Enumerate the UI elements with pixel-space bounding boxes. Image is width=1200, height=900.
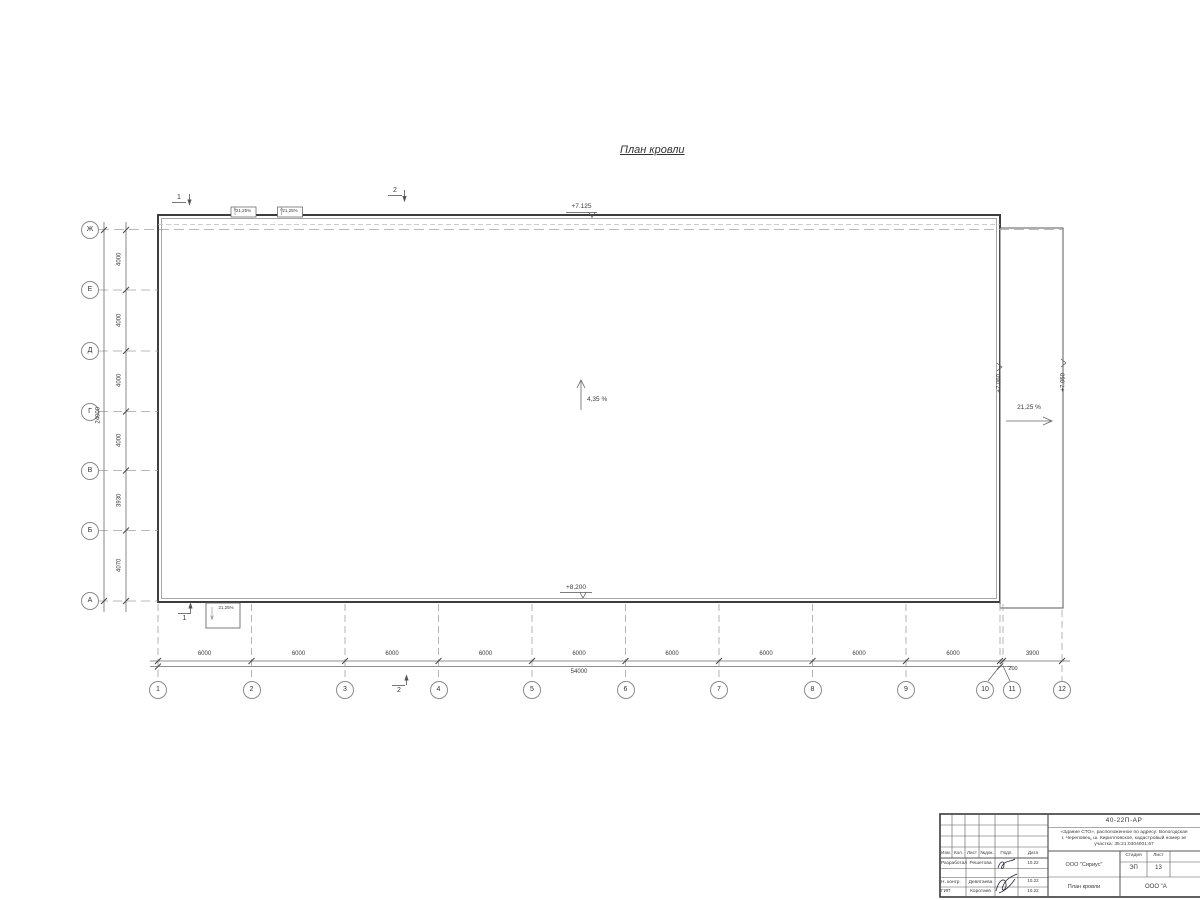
col-axis-bubble: 12	[1053, 681, 1071, 699]
row-axis-bubble: Ж	[81, 221, 99, 239]
dim-label: 4000	[117, 365, 124, 395]
level-top-label: +7.125	[561, 203, 602, 210]
canopy-slope-label: 21,25%	[212, 606, 240, 611]
col-axis-bubble: 1	[149, 681, 167, 699]
titleblock-name: Девятаева	[967, 880, 994, 885]
dim-label: 4070	[117, 550, 124, 580]
dim-label: 6000	[279, 651, 319, 658]
titleblock-stage-label: Стадия	[1120, 853, 1147, 858]
section-number: 2	[393, 687, 405, 695]
section-number: 2	[389, 187, 401, 195]
col-axis-bubble: 5	[523, 681, 541, 699]
dim-label: 6000	[652, 651, 692, 658]
titleblock-role: Н. контр.	[941, 880, 961, 885]
titleblock-name: Коротаев	[967, 889, 994, 894]
titleblock-doc-number: 40-22П-АР	[1048, 817, 1200, 824]
row-axis-bubble: Д	[81, 342, 99, 360]
level-bottom-label: +8.200	[555, 584, 597, 591]
row-axis-bubble: А	[81, 592, 99, 610]
titleblock-col-header: №док.	[979, 850, 995, 855]
titleblock-org2: ООО "А	[1145, 884, 1167, 891]
slope-right-label: 21,25 %	[1004, 404, 1054, 411]
dim-label: 4000	[117, 425, 124, 455]
titleblock-name: Решетова	[967, 861, 994, 866]
titleblock-desc-line: «Здание СТО», расположенное по адресу: В…	[1048, 830, 1200, 835]
titleblock-stage-value: ЭП	[1120, 865, 1147, 872]
dim-label: 3930	[117, 485, 124, 515]
row-axis-bubble: Е	[81, 281, 99, 299]
canopy-slope-label: 21,25%	[231, 209, 256, 214]
col-axis-bubble: 11	[1003, 681, 1021, 699]
dim-label: 4000	[117, 305, 124, 335]
dim-label: 6000	[839, 651, 879, 658]
dim-label: 6000	[559, 651, 599, 658]
dim-total-label: 24000	[96, 397, 103, 433]
col-axis-bubble: 4	[430, 681, 448, 699]
col-axis-bubble: 7	[710, 681, 728, 699]
col-axis-bubble: 3	[336, 681, 354, 699]
canopy-slope-label: 21,25%	[278, 209, 303, 214]
row-axis-bubble: Б	[81, 522, 99, 540]
titleblock-date: 10.22	[1018, 861, 1048, 866]
titleblock-date: 10.22	[1018, 889, 1048, 894]
titleblock-sheet-label: Лист	[1147, 853, 1170, 858]
titleblock-sheet-title: План кровли	[1048, 884, 1120, 890]
dim-label: 200	[1004, 666, 1022, 672]
col-axis-bubble: 10	[976, 681, 994, 699]
dim-label: 6000	[372, 651, 412, 658]
drawing-sheet: { "title": "План кровли", "levels": { "t…	[0, 0, 1200, 900]
titleblock-col-header: Дата	[1018, 850, 1048, 855]
titleblock-col-header: Кол.	[952, 850, 965, 855]
titleblock-role: Разработал	[941, 861, 967, 866]
drawing-linework	[0, 0, 1200, 900]
dim-label: 3900	[1013, 651, 1053, 658]
titleblock-col-header: Изм.	[940, 850, 952, 855]
page-title: План кровли	[620, 144, 685, 156]
col-axis-bubble: 9	[897, 681, 915, 699]
titleblock-desc-line: г. Череповец, ш. Кирилловское, кадастров…	[1048, 836, 1200, 841]
titleblock-col-header: Подп.	[995, 850, 1018, 855]
col-axis-bubble: 8	[804, 681, 822, 699]
titleblock-sheet-value: 13	[1147, 865, 1170, 872]
col-axis-bubble: 2	[243, 681, 261, 699]
col-axis-bubble: 6	[617, 681, 635, 699]
section-number: 1	[174, 194, 184, 202]
dim-label: 6000	[933, 651, 973, 658]
right-canopy	[1000, 228, 1063, 608]
titleblock-org: ООО "Сириус"	[1048, 862, 1120, 868]
row-axis-bubble: В	[81, 462, 99, 480]
slope-main-label: 4,35 %	[587, 396, 607, 403]
dim-label: 6000	[466, 651, 506, 658]
dim-label: 6000	[185, 651, 225, 658]
titleblock-role: ГИП	[941, 889, 951, 894]
level-right-outer-label: +7.050	[1061, 365, 1068, 399]
building-outline	[158, 215, 1063, 608]
titleblock-date: 10.22	[1018, 879, 1048, 884]
titleblock-col-header: Лист	[965, 850, 979, 855]
section-number: 1	[179, 615, 190, 623]
titleblock-desc-line: участка: 35:21:0304001:67	[1048, 842, 1200, 847]
level-right-inner-label: +7.060	[997, 366, 1004, 400]
dim-label: 6000	[746, 651, 786, 658]
dim-total-label: 54000	[559, 669, 599, 676]
dim-label: 4000	[117, 244, 124, 274]
